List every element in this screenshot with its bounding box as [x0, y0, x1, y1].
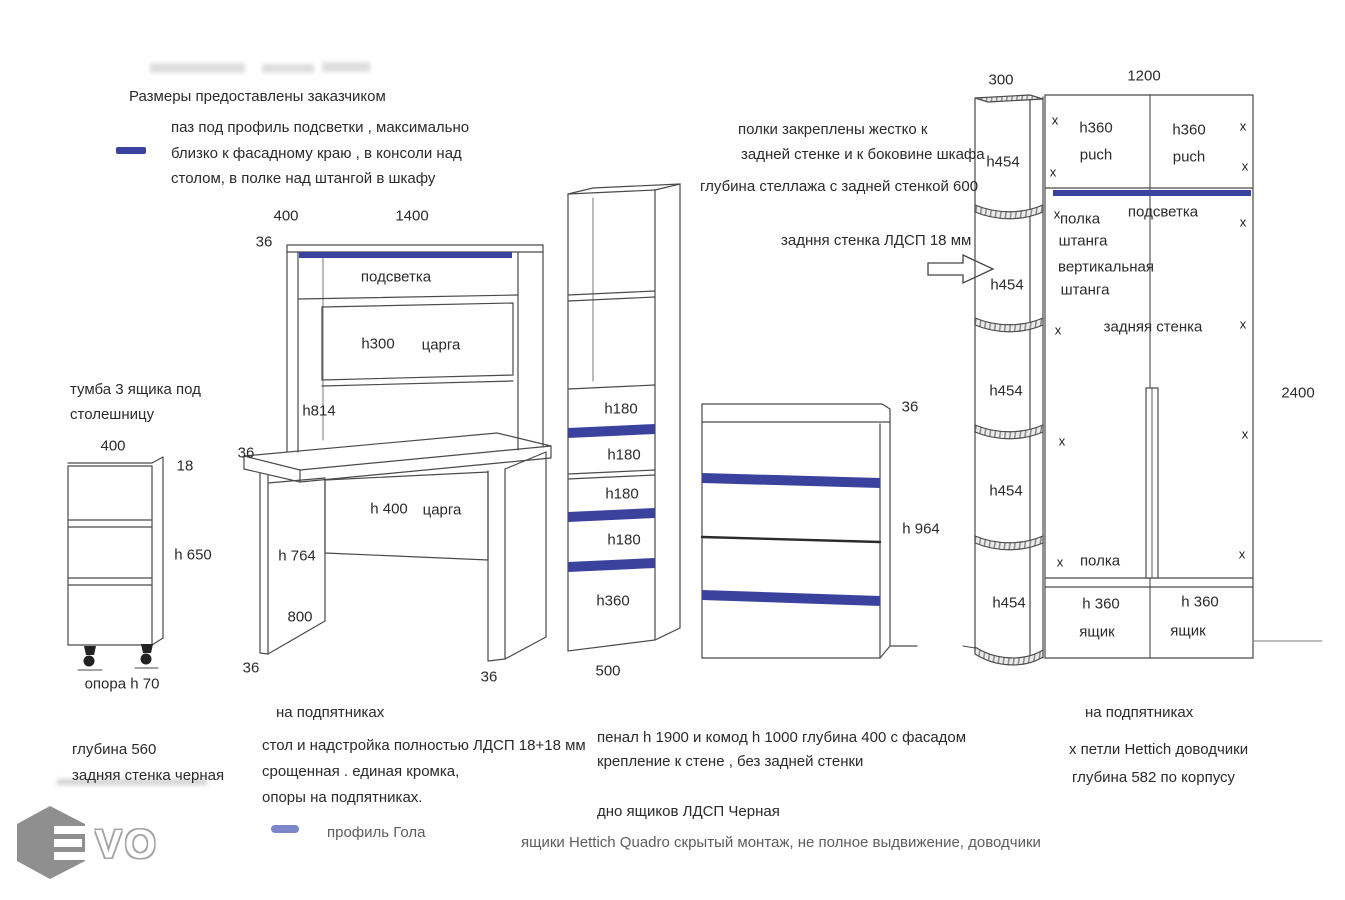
- hinge-x-mark: x: [1052, 113, 1059, 128]
- hinge-x-mark: x: [1055, 323, 1062, 338]
- tumba-top-18: 18: [177, 458, 194, 475]
- tumba-height-650: h 650: [174, 547, 212, 564]
- hinge-x-mark: x: [1057, 555, 1064, 570]
- tumba-title: тумба 3 ящика под столешницу: [70, 377, 201, 427]
- hinge-x-mark: x: [1240, 317, 1247, 332]
- wardrobe-polka2-label: полка: [1080, 553, 1120, 570]
- customer-note: Размеры предоставлены заказчиком: [129, 84, 386, 109]
- desk-leg-36-left: 36: [243, 660, 260, 677]
- wardrobe-cell-puch-left: puch: [1080, 147, 1113, 164]
- desk-material-note: стол и надстройка полностью ЛДСП 18+18 м…: [262, 733, 586, 811]
- penal-drawer-h360: h360: [596, 593, 629, 610]
- wardrobe-backwall-label: задняя стенка: [1104, 319, 1203, 336]
- penal-drawer-h180-3: h180: [605, 486, 638, 503]
- wardrobe-drawer-yashik-right: ящик: [1170, 623, 1205, 640]
- tumba-support-label: опора h 70: [85, 676, 160, 693]
- desk-h400: h 400: [370, 501, 408, 518]
- wardrobe-podsvetka-label: подсветка: [1128, 204, 1198, 221]
- desk-h814: h814: [302, 403, 335, 420]
- column-shelf-h454-4: h454: [989, 483, 1022, 500]
- tumba-width-400: 400: [100, 438, 125, 455]
- hinge-x-mark: x: [1050, 165, 1057, 180]
- desk-top-36: 36: [238, 445, 255, 462]
- wardrobe-shtanga-label: штанга: [1059, 233, 1108, 250]
- wardrobe-cell-h360-left: h360: [1079, 120, 1112, 137]
- wardrobe-vertikalnaya-label: вертикальная: [1058, 259, 1154, 276]
- desk-feet-note: на подпятниках: [276, 700, 384, 725]
- desk-depth-400: 400: [273, 208, 298, 225]
- groove-legend-note: паз под профиль подсветки , максимально …: [171, 115, 469, 192]
- wardrobe-height-2400: 2400: [1281, 385, 1314, 402]
- wardrobe-width-1200: 1200: [1127, 68, 1160, 85]
- wardrobe-depth-582-note: глубина 582 по корпусу: [1072, 765, 1235, 790]
- wardrobe-feet-note: на подпятниках: [1085, 700, 1193, 725]
- penal-drawer-h180-2: h180: [607, 447, 640, 464]
- wardrobe-backwall-note: задння стенка ЛДСП 18 мм: [781, 228, 971, 253]
- desk-depth-800: 800: [287, 609, 312, 626]
- penal-drawer-h180-1: h180: [604, 401, 637, 418]
- wardrobe-polka-label: полка: [1060, 211, 1100, 228]
- desk-h300: h300: [361, 336, 394, 353]
- komod-top-36: 36: [902, 399, 919, 416]
- evo-logo-text: VO: [95, 823, 159, 868]
- wardrobe-cell-puch-right: puch: [1173, 149, 1206, 166]
- penal-width-500: 500: [595, 663, 620, 680]
- hinge-x-mark: x: [1240, 119, 1247, 134]
- desk-leg-36-right: 36: [481, 669, 498, 686]
- hinge-x-mark: x: [1239, 547, 1246, 562]
- column-shelf-h454-2: h454: [990, 277, 1023, 294]
- drawing-labels: Размеры предоставлены заказчиком паз под…: [0, 0, 1345, 900]
- furniture-spec-drawing: Размеры предоставлены заказчиком паз под…: [0, 0, 1345, 900]
- column-shelf-h454-5: h454: [992, 595, 1025, 612]
- desk-tsarga-bottom-label: царга: [423, 502, 462, 519]
- wardrobe-cell-h360-right: h360: [1172, 122, 1205, 139]
- wardrobe-shelf-note-2: задней стенке и к боковине шкафа: [741, 142, 985, 167]
- tumba-depth-note: глубина 560 задняя стенка черная: [72, 737, 224, 789]
- komod-bottom-note: дно ящиков ЛДСП Черная: [597, 799, 780, 824]
- wardrobe-width-300: 300: [988, 72, 1013, 89]
- hinge-x-mark: x: [1240, 215, 1247, 230]
- wardrobe-shtanga2-label: штанга: [1061, 282, 1110, 299]
- wardrobe-drawer-yashik-left: ящик: [1079, 624, 1114, 641]
- desk-podsvetka-label: подсветка: [361, 269, 431, 286]
- desk-tsarga-top-label: царга: [422, 337, 461, 354]
- desk-h764: h 764: [278, 548, 316, 565]
- desk-hutch-36: 36: [256, 234, 273, 251]
- komod-h964: h 964: [902, 521, 940, 538]
- wardrobe-drawer-h360-right: h 360: [1181, 594, 1219, 611]
- hinge-x-mark: x: [1242, 427, 1249, 442]
- gola-legend-label: профиль Гола: [327, 820, 426, 845]
- komod-note: пенал h 1900 и комод h 1000 глубина 400 …: [597, 726, 966, 774]
- wardrobe-hinges-note: х петли Hettich доводчики: [1069, 737, 1248, 762]
- wardrobe-depth-note: глубина стеллажа с задней стенкой 600: [700, 174, 978, 199]
- penal-drawer-h180-4: h180: [607, 532, 640, 549]
- wardrobe-shelf-note-1: полки закреплены жестко к: [738, 117, 927, 142]
- column-shelf-h454-3: h454: [989, 383, 1022, 400]
- komod-hardware-note: ящики Hettich Quadro скрытый монтаж, не …: [521, 830, 1041, 855]
- wardrobe-drawer-h360-left: h 360: [1082, 596, 1120, 613]
- desk-width-1400: 1400: [395, 208, 428, 225]
- hinge-x-mark: x: [1054, 207, 1061, 222]
- hinge-x-mark: x: [1059, 434, 1066, 449]
- hinge-x-mark: x: [1242, 159, 1249, 174]
- column-shelf-h454-1: h454: [986, 154, 1019, 171]
